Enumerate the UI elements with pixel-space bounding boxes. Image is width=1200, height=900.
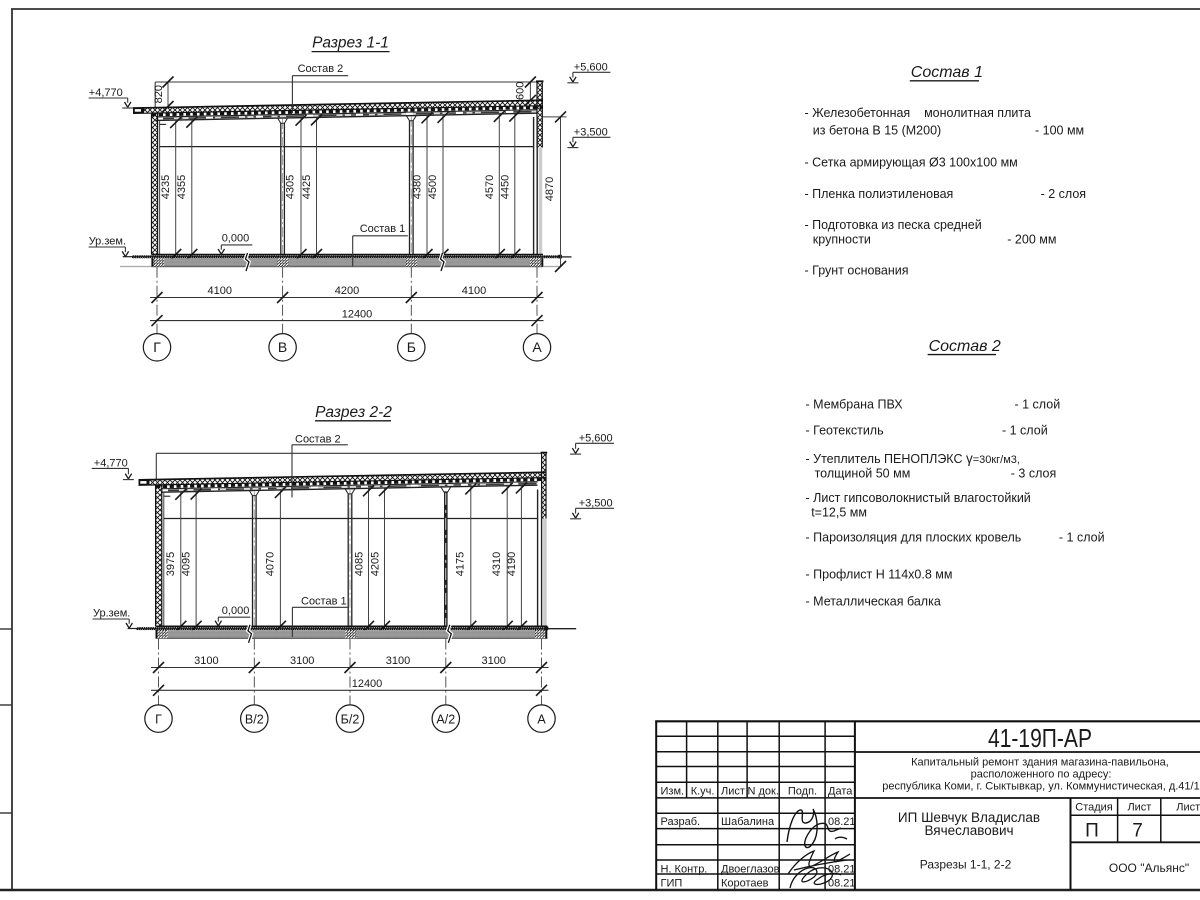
svg-text:ГИП: ГИП [661,877,683,889]
svg-text:Подп.: Подп. [788,785,817,797]
svg-text:- 200 мм: - 200 мм [1007,233,1056,247]
svg-text:4100: 4100 [208,285,232,297]
svg-text:Б/2: Б/2 [341,712,360,726]
svg-text:4205: 4205 [369,552,381,576]
svg-text:Изм.: Изм. [661,785,685,797]
svg-text:4380: 4380 [411,175,423,199]
svg-text:12400: 12400 [352,678,383,690]
svg-text:3100: 3100 [481,655,505,667]
svg-text:4450: 4450 [499,175,511,199]
svg-text:из бетона В 15 (М200): из бетона В 15 (М200) [813,123,941,137]
svg-text:0,000: 0,000 [222,605,250,617]
svg-text:Состав 1: Состав 1 [301,595,347,607]
svg-text:- 1 слой: - 1 слой [1015,398,1061,412]
svg-text:- 1 слой: - 1 слой [1059,530,1105,544]
svg-text:4310: 4310 [491,552,503,576]
svg-text:Ур.зем.: Ур.зем. [89,235,126,247]
svg-text:41-19П-АР: 41-19П-АР [988,723,1092,753]
svg-text:Лист: Лист [721,785,745,797]
svg-text:0,000: 0,000 [222,233,250,245]
svg-text:- 100 мм: - 100 мм [1035,123,1084,137]
svg-text:+3,500: +3,500 [579,497,613,509]
svg-text:4355: 4355 [176,175,188,199]
svg-text:- 3 слоя: - 3 слоя [1011,466,1056,480]
svg-text:4305: 4305 [285,175,297,199]
svg-text:3100: 3100 [290,655,314,667]
svg-text:Состав 2: Состав 2 [298,63,344,75]
svg-text:08.21: 08.21 [828,877,856,889]
svg-text:4190: 4190 [506,552,518,576]
svg-text:3100: 3100 [194,655,218,667]
svg-text:- Геотекстиль: - Геотекстиль [806,424,884,438]
svg-text:4095: 4095 [181,552,193,576]
svg-text:4200: 4200 [335,285,359,297]
svg-text:Состав 2: Состав 2 [295,433,341,445]
svg-text:4570: 4570 [484,175,496,199]
svg-text:Лист: Лист [1127,802,1151,814]
svg-text:+4,770: +4,770 [94,457,128,469]
svg-text:Коротаев: Коротаев [721,877,769,889]
svg-text:12400: 12400 [342,308,373,320]
svg-text:- Утеплитель ПЕНОПЛЭКС γ=30кг/: - Утеплитель ПЕНОПЛЭКС γ=30кг/м3, [806,451,1020,466]
svg-text:4870: 4870 [544,177,556,201]
svg-text:4500: 4500 [427,175,439,199]
svg-text:600: 600 [515,82,527,100]
svg-text:3975: 3975 [165,552,177,576]
svg-text:Вячеславович: Вячеславович [924,823,1013,838]
svg-text:Разрез 2-2: Разрез 2-2 [315,404,392,421]
svg-text:- Сетка армирующая Ø3 100х100: - Сетка армирующая Ø3 100х100 мм [805,155,1018,169]
svg-text:N док.: N док. [748,785,779,797]
svg-text:- Пленка полиэтиленовая: - Пленка полиэтиленовая [805,187,954,201]
svg-text:Состав 2: Состав 2 [929,338,1001,355]
svg-text:3100: 3100 [386,655,410,667]
svg-text:Разрезы 1-1, 2-2: Разрезы 1-1, 2-2 [920,858,1012,872]
svg-text:4425: 4425 [301,175,313,199]
svg-text:+4,770: +4,770 [89,87,123,99]
svg-text:- Железобетонная монолитная: - Железобетонная монолитная плита [805,106,1031,120]
svg-text:В/2: В/2 [245,712,264,726]
svg-text:- 2 слоя: - 2 слоя [1041,187,1086,201]
svg-text:А: А [532,339,542,355]
svg-text:Капитальный ремонт здания мага: Капитальный ремонт здания магазина-павил… [911,756,1169,768]
svg-text:А: А [537,712,546,726]
svg-text:+5,600: +5,600 [574,61,608,73]
svg-text:Н. Контр.: Н. Контр. [661,863,708,875]
svg-text:+3,500: +3,500 [574,126,608,138]
svg-text:4070: 4070 [265,552,277,576]
svg-text:В: В [278,339,287,355]
svg-text:- Металлическая балка: - Металлическая балка [806,594,941,608]
svg-text:4235: 4235 [160,175,172,199]
svg-text:- 1 слой: - 1 слой [1002,424,1048,438]
svg-text:- Грунт основания: - Грунт основания [805,263,909,277]
svg-text:- Мембрана ПВХ: - Мембрана ПВХ [806,398,904,412]
svg-text:Двоеглазов: Двоеглазов [721,863,780,875]
svg-text:4175: 4175 [455,552,467,576]
svg-text:А/2: А/2 [436,712,455,726]
svg-text:Разрез 1-1: Разрез 1-1 [312,34,389,51]
svg-text:4085: 4085 [353,552,365,576]
svg-text:Б: Б [407,339,416,355]
svg-text:крупности: крупности [813,233,871,247]
svg-text:Г: Г [153,339,161,355]
svg-text:Листов: Листов [1176,802,1200,814]
svg-text:7: 7 [1132,821,1143,842]
svg-text:ООО "Альянс": ООО "Альянс" [1109,861,1189,875]
svg-text:- Лист гипсоволокнистый влагос: - Лист гипсоволокнистый влагостойкий [806,491,1031,505]
svg-text:+5,600: +5,600 [579,432,613,444]
svg-text:Шабалина: Шабалина [721,816,775,828]
svg-text:П: П [1085,821,1099,842]
svg-text:- Пароизоляция для плоских кро: - Пароизоляция для плоских кровель [806,530,1022,544]
svg-text:820: 820 [153,85,165,103]
svg-text:Разраб.: Разраб. [661,816,701,828]
svg-text:- Профлист Н 114х0.8 мм: - Профлист Н 114х0.8 мм [806,568,953,582]
svg-text:Ур.зем.: Ур.зем. [93,607,130,619]
svg-text:республика Коми, г. Сыктывкар,: республика Коми, г. Сыктывкар, ул. Комму… [882,780,1199,792]
svg-text:08.21: 08.21 [828,816,856,828]
svg-text:расположенного по адресу:: расположенного по адресу: [971,768,1112,780]
svg-text:Стадия: Стадия [1075,802,1113,814]
svg-text:толщиной 50 мм: толщиной 50 мм [815,466,911,480]
svg-text:Состав 1: Состав 1 [911,64,983,81]
svg-text:t=12,5 мм: t=12,5 мм [811,505,867,519]
svg-text:К.уч.: К.уч. [691,785,715,797]
svg-text:Дата: Дата [828,785,853,797]
svg-text:Г: Г [155,712,162,726]
svg-text:4100: 4100 [462,285,486,297]
svg-text:- Подготовка из песка средней: - Подготовка из песка средней [805,218,982,232]
svg-text:Состав 1: Состав 1 [360,223,406,235]
